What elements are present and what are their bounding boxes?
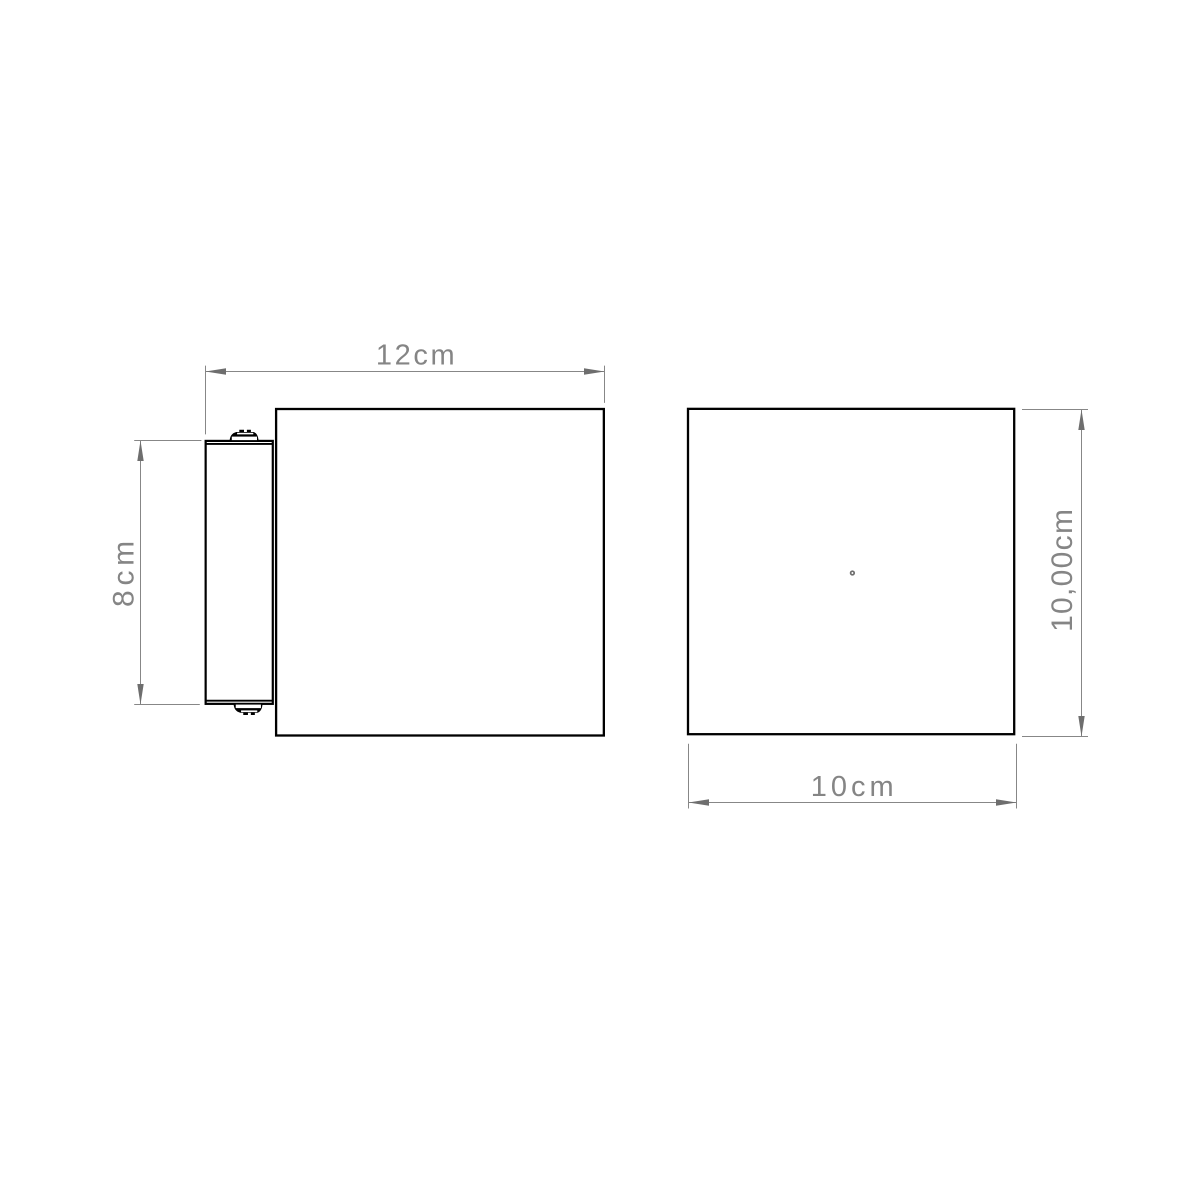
svg-text:12cm: 12cm — [376, 340, 457, 372]
svg-text:8cm: 8cm — [107, 536, 140, 607]
svg-text:10cm: 10cm — [811, 771, 898, 803]
svg-text:10,00cm: 10,00cm — [1046, 508, 1079, 632]
